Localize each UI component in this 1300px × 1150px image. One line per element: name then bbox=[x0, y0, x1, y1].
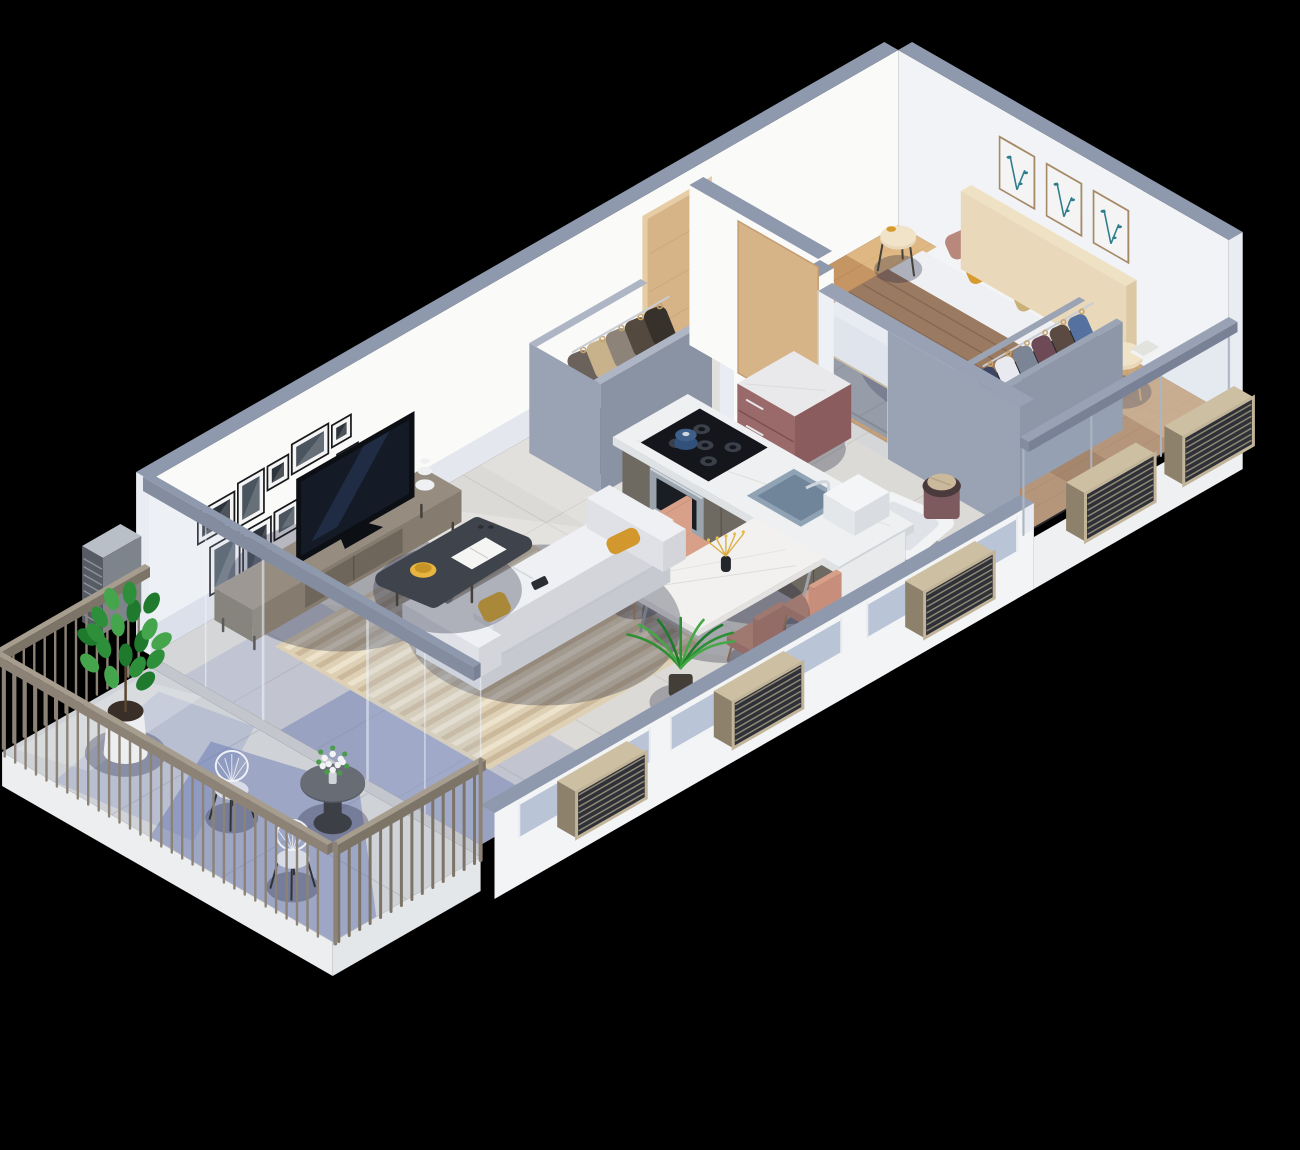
laundry-basket bbox=[923, 474, 961, 519]
apartment-floorplan-3d bbox=[0, 0, 1300, 1150]
blue-pot bbox=[674, 429, 698, 450]
render-stage bbox=[0, 0, 1300, 1150]
